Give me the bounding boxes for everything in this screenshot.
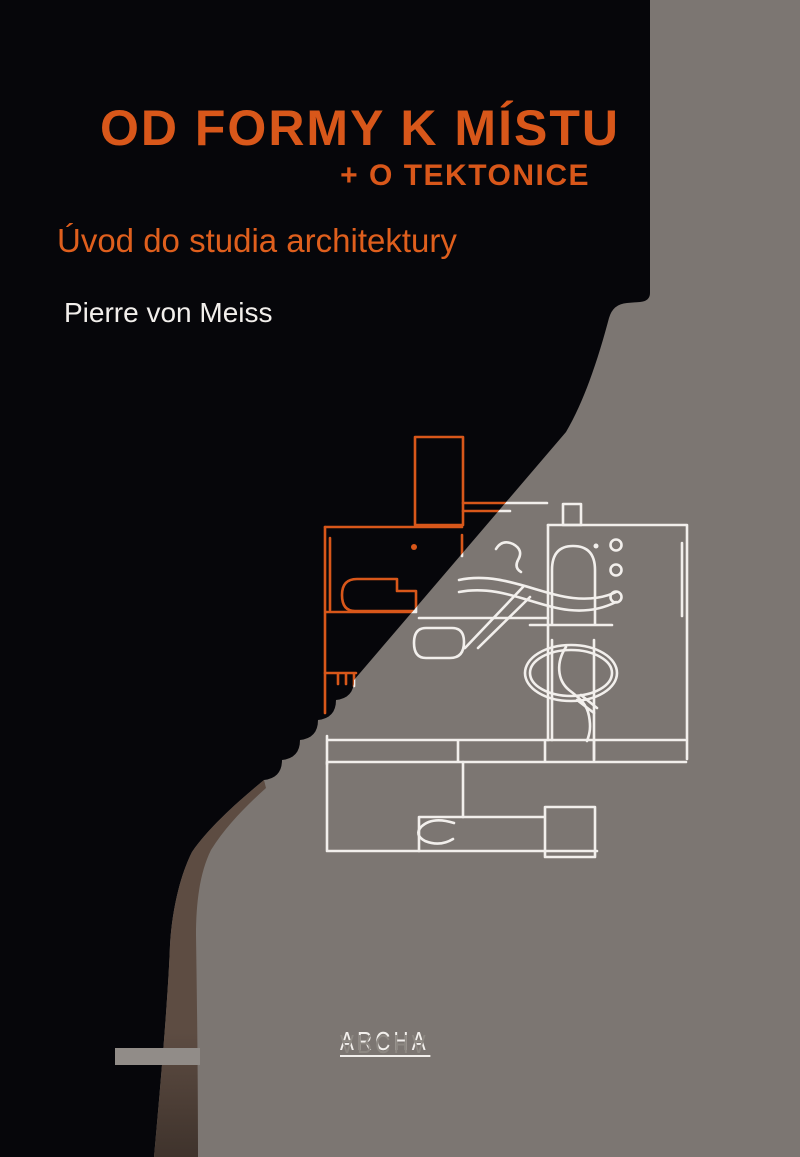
- book-cover: OD FORMY K MÍSTU + O TEKTONICE Úvod do s…: [0, 0, 800, 1157]
- book-tagline: Úvod do studia architektury: [57, 224, 457, 257]
- publisher-logo-reflection: ARCHA: [340, 1030, 430, 1057]
- gray-tab: [115, 1048, 200, 1065]
- author-name: Pierre von Meiss: [64, 299, 273, 327]
- book-subtitle: + O TEKTONICE: [100, 161, 590, 191]
- book-title: OD FORMY K MÍSTU: [100, 103, 620, 153]
